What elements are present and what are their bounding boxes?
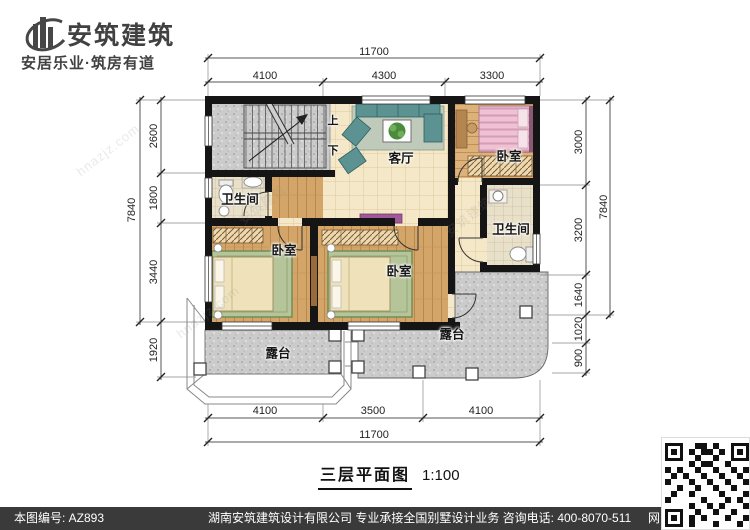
dim-top-seg-2: 3300 [480,70,504,82]
web-label: 网 [648,507,660,530]
dim-left-seg-1: 1800 [148,186,160,210]
room-label-bathroom-right: 卫生间 [492,219,530,238]
room-label-bedroom-middle: 卧室 [386,261,411,280]
room-label-terrace-right: 露台 [439,324,464,343]
dim-right-seg-4: 900 [573,349,585,367]
dim-right-total: 7840 [598,195,610,219]
dim-bottom-seg-0: 4100 [253,405,277,417]
dim-top-total: 11700 [359,46,389,58]
brand-logo-icon [27,17,64,50]
dim-bottom-seg-2: 4100 [469,405,493,417]
floor-plan-page: hnazjz.com 安筑建筑 安筑建筑 hnazjz.com hnazjz.c… [0,0,750,530]
room-label-bedroom-left: 卧室 [271,240,296,259]
dim-right-seg-2: 1640 [573,283,585,307]
drawing-title-text: 三层平面图 [318,461,412,490]
qr-code [661,437,750,530]
dim-bottom-total: 11700 [359,429,389,441]
dim-top-seg-1: 4300 [372,70,396,82]
dim-top-seg-0: 4100 [253,70,277,82]
dim-bottom-seg-1: 3500 [361,405,385,417]
drawing-number: 本图编号: AZ893 [14,507,104,530]
room-label-bathroom-left: 卫生间 [221,189,259,208]
dim-right-seg-0: 3000 [573,130,585,154]
brand-slogan: 安居乐业·筑房有道 [21,52,155,73]
footer-bar: 本图编号: AZ893 湖南安筑建筑设计有限公司 专业承接全国别墅设计业务 咨询… [0,507,750,530]
stairs-up-label: 上 [328,112,339,128]
dim-right-seg-1: 3200 [573,218,585,242]
room-label-living-room: 客厅 [388,148,413,167]
qr-pattern [665,443,749,527]
dim-left-total: 7840 [126,198,138,222]
dim-left-seg-2: 3440 [148,260,160,284]
company-info: 湖南安筑建筑设计有限公司 专业承接全国别墅设计业务 咨询电话: 400-8070… [208,507,631,530]
drawing-scale: 1:100 [422,467,460,484]
dim-right-seg-3: 1020 [573,317,585,341]
drawing-title: 三层平面图 1:100 [318,461,460,490]
room-label-bedroom-top: 卧室 [496,146,521,165]
stairs-down-label: 下 [328,142,339,158]
dim-left-seg-3: 1920 [148,338,160,362]
brand-name: 安筑建筑 [67,16,175,52]
dim-left-seg-0: 2600 [148,124,160,148]
room-label-terrace-left: 露台 [265,343,290,362]
